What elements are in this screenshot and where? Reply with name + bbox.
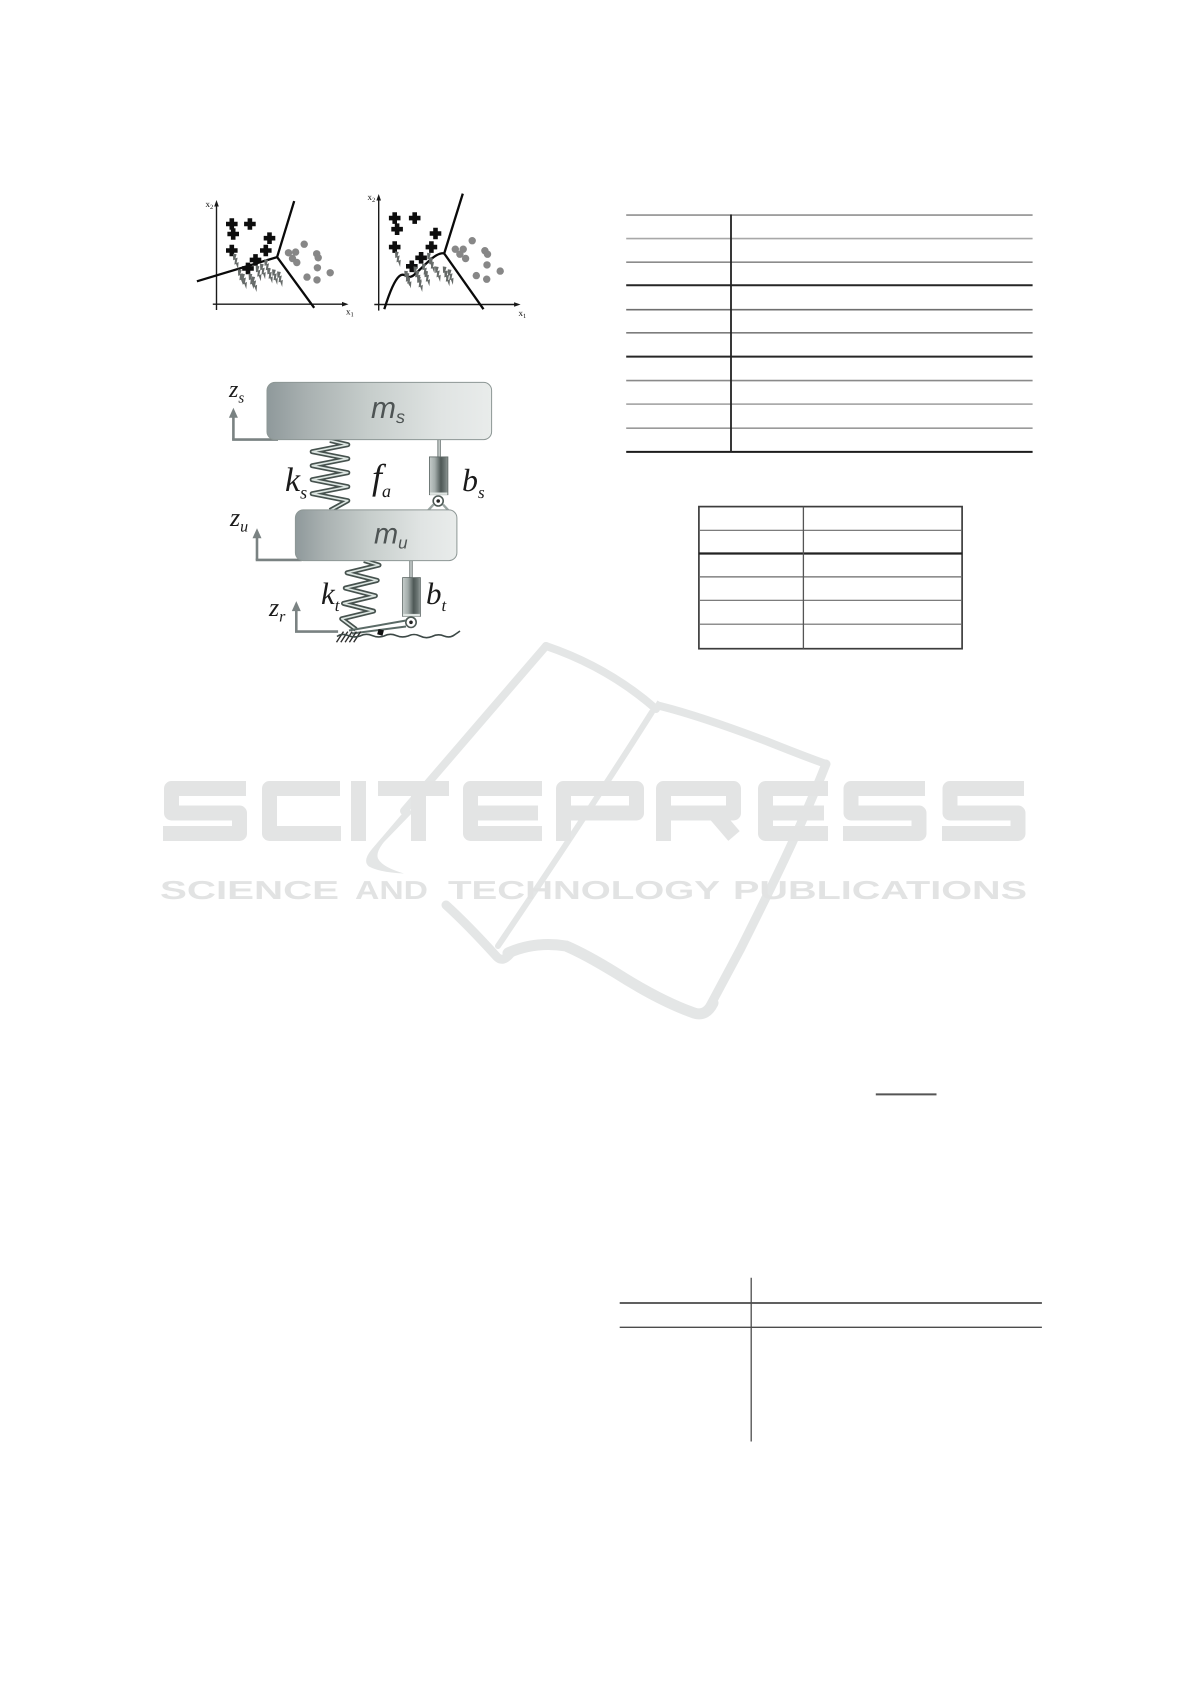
svg-text:TECHNOLOGY: TECHNOLOGY bbox=[448, 875, 720, 905]
svg-text:x1: x1 bbox=[519, 308, 527, 320]
svg-text:zu: zu bbox=[229, 503, 248, 536]
svg-text:kt: kt bbox=[321, 576, 341, 615]
svg-text:SCIENCE: SCIENCE bbox=[160, 875, 339, 905]
svg-text:AND: AND bbox=[355, 875, 428, 905]
svg-text:zs: zs bbox=[228, 377, 244, 406]
svg-text:bt: bt bbox=[426, 576, 448, 615]
svg-text:ks: ks bbox=[285, 462, 307, 503]
svg-text:bs: bs bbox=[462, 462, 485, 502]
svg-text:x1: x1 bbox=[346, 307, 354, 319]
svg-text:x2: x2 bbox=[368, 192, 376, 204]
svg-text:x2: x2 bbox=[206, 199, 214, 211]
svg-text:PUBLICATIONS: PUBLICATIONS bbox=[733, 875, 1027, 905]
svg-text:zr: zr bbox=[268, 593, 286, 626]
svg-text:fa: fa bbox=[372, 457, 391, 501]
